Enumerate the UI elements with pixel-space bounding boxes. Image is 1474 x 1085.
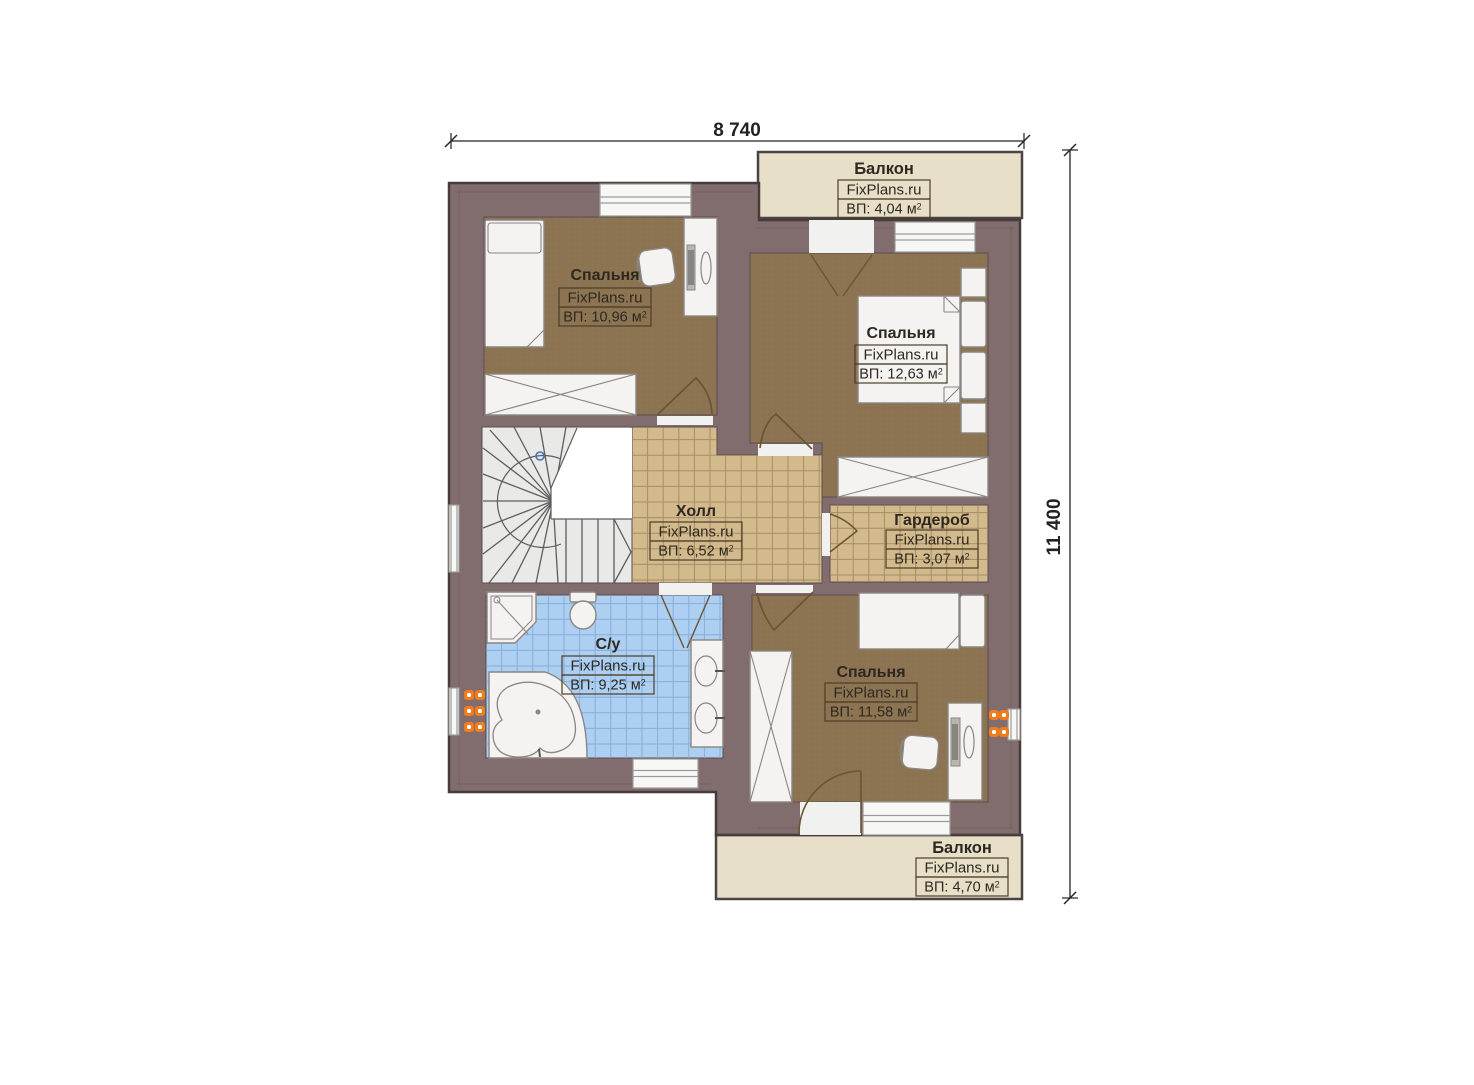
svg-text:ВП: 4,70 м2: ВП: 4,70 м2 <box>924 880 999 896</box>
svg-text:Холл: Холл <box>676 503 716 520</box>
svg-text:FixPlans.ru: FixPlans.ru <box>924 860 999 877</box>
svg-text:ВП: 12,63 м2: ВП: 12,63 м2 <box>859 367 942 383</box>
svg-text:FixPlans.ru: FixPlans.ru <box>894 532 969 549</box>
svg-text:Спальня: Спальня <box>836 664 905 681</box>
svg-text:Балкон: Балкон <box>932 839 992 857</box>
svg-text:ВП: 9,25 м2: ВП: 9,25 м2 <box>570 678 645 694</box>
svg-text:FixPlans.ru: FixPlans.ru <box>567 290 642 307</box>
svg-text:ВП: 10,96 м2: ВП: 10,96 м2 <box>563 310 646 326</box>
svg-text:Спальня: Спальня <box>570 267 639 284</box>
svg-text:8 740: 8 740 <box>713 120 761 141</box>
svg-text:Спальня: Спальня <box>866 325 935 342</box>
svg-text:FixPlans.ru: FixPlans.ru <box>846 182 921 199</box>
svg-text:ВП: 11,58 м2: ВП: 11,58 м2 <box>830 705 912 721</box>
svg-text:FixPlans.ru: FixPlans.ru <box>658 524 733 541</box>
svg-text:С/у: С/у <box>596 636 621 653</box>
svg-text:FixPlans.ru: FixPlans.ru <box>833 685 908 702</box>
svg-text:11 400: 11 400 <box>1044 498 1065 555</box>
svg-text:FixPlans.ru: FixPlans.ru <box>570 658 645 675</box>
svg-text:ВП: 4,04 м2: ВП: 4,04 м2 <box>846 202 921 218</box>
svg-text:Балкон: Балкон <box>854 160 914 178</box>
svg-text:Гардероб: Гардероб <box>894 512 970 529</box>
svg-text:ВП: 6,52 м2: ВП: 6,52 м2 <box>658 544 733 560</box>
svg-text:ВП: 3,07 м2: ВП: 3,07 м2 <box>894 552 969 568</box>
svg-text:FixPlans.ru: FixPlans.ru <box>863 347 938 364</box>
